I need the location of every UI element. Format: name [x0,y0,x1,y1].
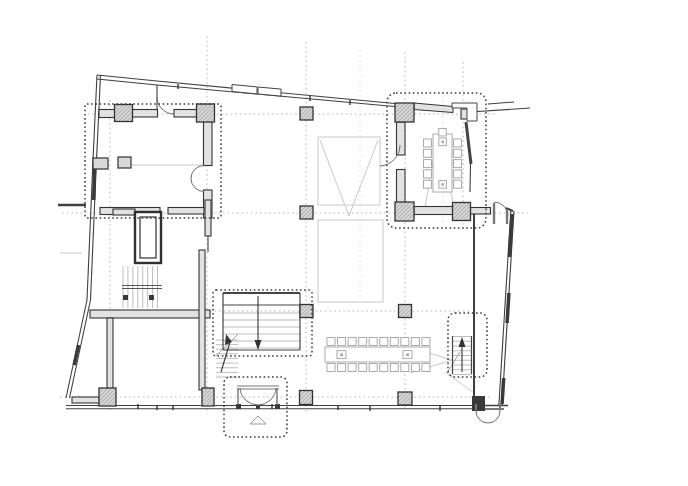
solid-block [123,295,128,300]
column [395,202,414,221]
door-jambs [237,203,507,410]
interior-wall [99,110,115,118]
solid-block [256,405,260,409]
chair-row [338,338,346,346]
table-dot [441,183,444,186]
wall-polygon [414,103,453,113]
stair-edge [466,122,471,164]
tables [325,134,452,362]
chair-row [348,338,356,346]
chair-row [369,338,377,346]
chair-row [422,364,430,372]
chair-row [454,180,462,188]
interior-wall [107,318,113,390]
door-arc [157,97,174,114]
door-arc [240,388,258,405]
room-outline [213,290,312,356]
solid-block [149,295,154,300]
entrance-triangle [250,416,266,424]
column [300,206,313,219]
table-dot [340,353,343,356]
chair-row [454,149,462,157]
chair-row [380,338,388,346]
facade-band [74,345,79,365]
chair-row [327,364,335,372]
floor-plan-canvas [0,0,688,486]
stair-arrow-head [225,334,232,345]
chair-row [338,364,346,372]
chair-row [422,338,430,346]
solid-block [472,396,485,411]
fixture [118,157,131,168]
wall-polygons [414,103,453,113]
envelope-wall-line [87,160,93,300]
facade-band [502,378,504,404]
column [300,391,313,405]
plan-layers [58,36,530,437]
facade-bands [74,165,512,404]
column [399,305,412,318]
stair-edges [122,122,472,374]
chair-row [454,160,462,168]
grid-lines [60,36,528,414]
table-dot [406,353,409,356]
chair-row [411,364,419,372]
chair-row [424,180,432,188]
facade-band [94,165,95,200]
elevator [140,217,156,258]
floor-plan [0,0,688,486]
room-outline [448,313,487,377]
elevator-shaft [135,212,161,263]
interior-wall [113,209,135,215]
fixtures [93,157,131,169]
interior-wall [397,122,406,155]
envelope-wall-line [70,300,91,398]
chair-row [401,338,409,346]
door-arc [258,388,276,405]
column [398,392,412,405]
overhead-void-rect [318,220,383,302]
overhead-voids [318,137,383,302]
chair-row [439,129,447,137]
envelope-wall-line [470,164,471,192]
stair-arrow-head [459,337,466,347]
chair-row [380,364,388,372]
chair-row [369,364,377,372]
interior-wall [72,397,102,403]
interior-wall [174,110,197,118]
column [115,105,133,122]
envelope-wall-line [93,75,97,160]
stair-arrow-head [255,340,262,350]
column [197,104,215,122]
interior-wall [471,208,491,215]
interior-wall [133,110,158,118]
envelope-wall-line [470,108,530,112]
facade-band [507,293,509,323]
chair-row [359,364,367,372]
chair-row [327,338,335,346]
column [395,103,414,122]
interior-wall [204,122,213,166]
column [300,305,313,318]
chair-row [454,139,462,147]
chair-row [390,338,398,346]
chair-row [454,170,462,178]
overhead-void-rect [318,137,380,205]
chair-row [348,364,356,372]
facade-window [258,87,281,96]
chair-row [401,364,409,372]
chair-row [424,149,432,157]
interior-wall [414,207,453,215]
interior-wall [397,170,406,203]
envelope-walls [58,75,530,409]
interior-wall [168,208,204,215]
column [99,388,116,406]
column [202,388,214,406]
column [300,107,313,120]
entrance-marker [250,416,266,424]
chair-row [424,170,432,178]
interior-wall [199,250,205,390]
chair-row [359,338,367,346]
chair-row [424,160,432,168]
door-arc [191,166,204,192]
table-dot [441,141,444,144]
chair-row [424,139,432,147]
overhead-line [445,372,474,393]
chair-row [411,338,419,346]
door-arc [488,410,500,423]
chair-row [390,364,398,372]
envelope-wall-line [488,102,514,104]
door-arc [476,410,488,423]
interior-wall [90,310,210,318]
fixture [93,158,108,169]
column [453,203,471,221]
